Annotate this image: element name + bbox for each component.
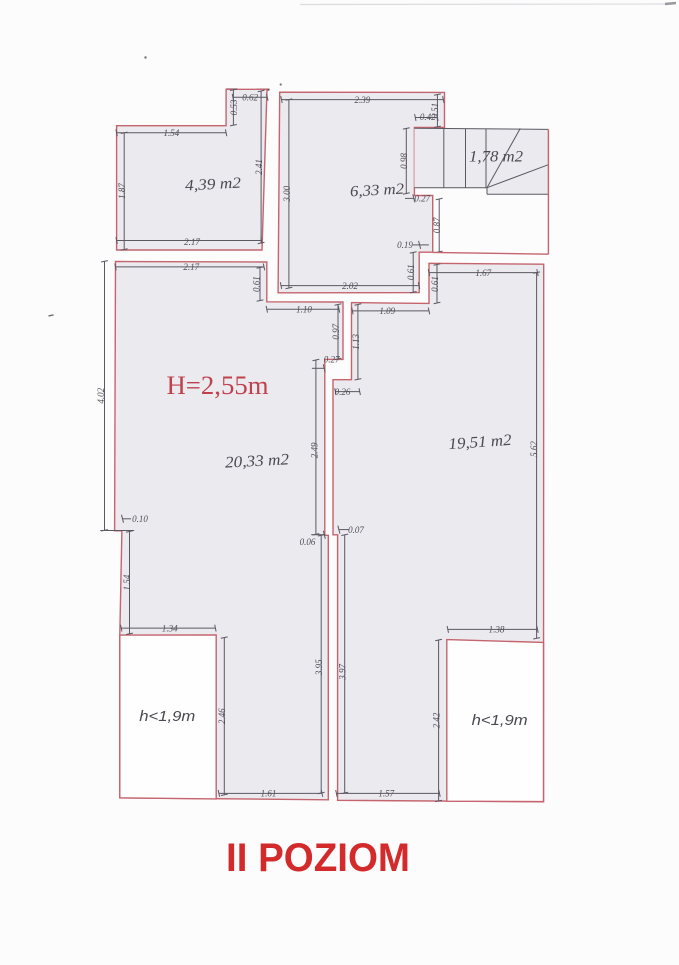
svg-text:1,78 m2: 1,78 m2 [469, 149, 523, 166]
svg-text:3.97: 3.97 [337, 664, 347, 681]
svg-text:2.39: 2.39 [355, 95, 371, 105]
svg-text:1.87: 1.87 [117, 183, 127, 199]
svg-text:0.62: 0.62 [242, 92, 258, 102]
svg-text:1.54: 1.54 [163, 128, 179, 138]
svg-text:2.46: 2.46 [217, 708, 227, 724]
svg-text:0.19: 0.19 [397, 240, 413, 250]
svg-text:0.87: 0.87 [432, 217, 442, 233]
svg-text:0.10: 0.10 [132, 514, 148, 524]
svg-text:2.42: 2.42 [431, 712, 441, 728]
svg-text:2.02: 2.02 [342, 281, 358, 291]
svg-text:1.09: 1.09 [379, 306, 395, 316]
svg-text:1.54: 1.54 [122, 574, 132, 590]
svg-text:3.95: 3.95 [314, 659, 324, 676]
svg-text:1.57: 1.57 [378, 789, 394, 799]
svg-text:6,33 m2: 6,33 m2 [350, 181, 405, 201]
svg-text:h<1,9m: h<1,9m [139, 709, 195, 725]
svg-text:20,33 m2: 20,33 m2 [225, 451, 290, 471]
svg-text:2.17: 2.17 [184, 237, 200, 247]
svg-text:0.98: 0.98 [399, 153, 409, 169]
svg-text:0.27: 0.27 [324, 355, 340, 365]
svg-text:0.07: 0.07 [348, 525, 364, 535]
svg-text:0.61: 0.61 [406, 264, 416, 280]
svg-text:0.26: 0.26 [335, 387, 351, 397]
svg-text:2.49: 2.49 [309, 442, 319, 458]
svg-text:4,39 m2: 4,39 m2 [185, 175, 242, 195]
svg-text:1.10: 1.10 [296, 305, 312, 315]
svg-text:0.27: 0.27 [414, 194, 430, 204]
svg-text:1.13: 1.13 [351, 334, 361, 350]
svg-text:5.62: 5.62 [529, 441, 539, 457]
svg-text:0.53: 0.53 [229, 99, 239, 115]
svg-text:1.34: 1.34 [162, 623, 178, 633]
svg-text:1.38: 1.38 [489, 625, 505, 635]
svg-text:1.61: 1.61 [261, 789, 277, 799]
svg-text:4.02: 4.02 [96, 387, 106, 403]
svg-text:0.97: 0.97 [331, 323, 341, 339]
svg-text:0.61: 0.61 [251, 276, 261, 292]
svg-text:2.41: 2.41 [254, 159, 264, 175]
svg-text:0.42: 0.42 [420, 112, 436, 122]
svg-text:h<1,9m: h<1,9m [472, 713, 528, 729]
svg-text:1.67: 1.67 [475, 268, 491, 278]
svg-text:3.00: 3.00 [282, 185, 292, 202]
svg-text:H=2,55m: H=2,55m [167, 371, 269, 400]
svg-text:0.61: 0.61 [430, 276, 440, 292]
svg-text:2.17: 2.17 [183, 262, 199, 272]
svg-text:0.06: 0.06 [300, 537, 316, 547]
svg-text:II POZIOM: II POZIOM [226, 836, 410, 880]
